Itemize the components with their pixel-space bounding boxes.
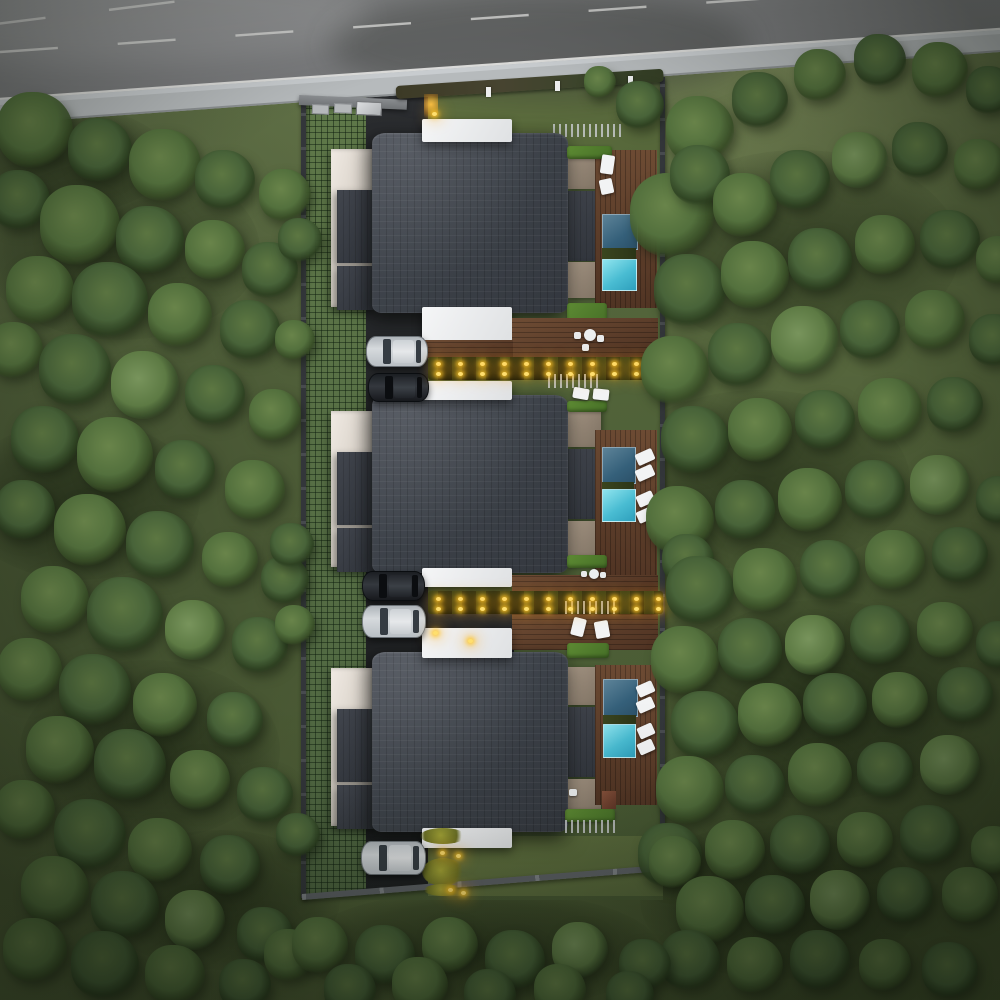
tree (738, 683, 802, 747)
tree (795, 390, 855, 450)
lit-bush (422, 858, 464, 886)
tree (708, 323, 772, 387)
fence-bottom (302, 865, 663, 900)
house2-lower-pool (602, 489, 636, 522)
tree (718, 618, 782, 682)
tree (854, 34, 906, 86)
tree (59, 654, 131, 726)
tree (91, 871, 159, 939)
tree (87, 577, 163, 653)
tree (785, 615, 845, 675)
dark-car (362, 571, 425, 601)
tree (661, 406, 729, 474)
tree (0, 92, 73, 168)
tree (900, 805, 960, 865)
path-light (480, 372, 485, 376)
house1-entrance-canopy (422, 119, 512, 142)
tree (200, 835, 260, 895)
patio-chair (600, 572, 606, 578)
path-light (568, 607, 573, 611)
lounger (572, 387, 590, 401)
tree (71, 931, 139, 999)
house3-lower-pool (603, 724, 636, 758)
tree (128, 818, 192, 882)
car-rear-window (413, 610, 419, 634)
tree (202, 532, 258, 588)
house3-upper-pool (603, 679, 638, 717)
tree (21, 856, 89, 924)
tree (170, 750, 230, 810)
tree (145, 945, 205, 1000)
path-light (634, 597, 639, 601)
tree (185, 365, 245, 425)
tree (249, 389, 301, 441)
house1-roof (372, 133, 568, 313)
path-light (502, 372, 507, 376)
tree (225, 460, 285, 520)
path-light (546, 607, 551, 611)
tree (0, 480, 55, 540)
hedge (567, 643, 609, 658)
tree (54, 494, 126, 566)
tree (770, 815, 830, 875)
tree (845, 460, 905, 520)
garden-chair (569, 789, 577, 796)
silver-car (362, 605, 426, 638)
tree (859, 939, 911, 991)
path-light (568, 372, 573, 376)
object-layer (0, 0, 1000, 1000)
fence-post (555, 81, 560, 91)
car-windshield (385, 376, 393, 399)
tree (855, 215, 915, 275)
tree (195, 150, 255, 210)
tree (207, 692, 263, 748)
tree (713, 173, 777, 237)
tree (837, 812, 893, 868)
lighted-path (428, 591, 663, 614)
path-light (436, 607, 441, 611)
tree (39, 334, 111, 406)
patio-table (589, 569, 599, 579)
garden-light (448, 888, 453, 892)
path-light (480, 362, 485, 366)
tree (790, 930, 850, 990)
gate-skylight (356, 101, 383, 116)
tree (771, 306, 839, 374)
gate-panel (312, 104, 329, 115)
tree (715, 480, 775, 540)
house1-pool-planter (602, 248, 636, 259)
path-light (568, 362, 573, 366)
house2-rear-canopy (422, 568, 512, 587)
path-light (612, 372, 617, 376)
tree (954, 139, 1000, 191)
car-roof (393, 340, 414, 363)
tree (165, 600, 225, 660)
car-rear-window (417, 377, 422, 398)
tree (865, 530, 925, 590)
path-light (458, 362, 463, 366)
tree (927, 377, 983, 433)
tree (976, 621, 1000, 669)
tree (666, 556, 734, 624)
house3-left-wing-roof (337, 709, 375, 782)
tree (745, 875, 805, 935)
path-light (634, 362, 639, 366)
path-light (546, 372, 551, 376)
path-light (502, 362, 507, 366)
tree (727, 937, 783, 993)
patio-table (584, 329, 596, 341)
hedge (567, 555, 607, 568)
tree (942, 867, 998, 923)
tree (111, 351, 179, 419)
path-light (524, 362, 529, 366)
tree (77, 417, 153, 493)
path-light (590, 597, 595, 601)
garden-light (468, 639, 473, 643)
path-light (634, 372, 639, 376)
terrace-deck (512, 575, 658, 592)
car-windshield (379, 574, 387, 598)
path-light (502, 597, 507, 601)
tree (725, 755, 785, 815)
tree (912, 42, 968, 98)
tree (850, 605, 910, 665)
tree (275, 320, 315, 360)
path-light (656, 607, 661, 611)
tree (165, 890, 225, 950)
house3-left-wing-roof (337, 785, 375, 829)
path-light (458, 597, 463, 601)
car-windshield (380, 608, 388, 634)
tree (94, 729, 166, 801)
tree (0, 638, 62, 702)
house3-pool-planter (603, 715, 636, 724)
fence-left (301, 96, 306, 898)
path-light (612, 597, 617, 601)
silver-car (361, 841, 426, 875)
tree (11, 406, 79, 474)
tree (905, 290, 965, 350)
tree (0, 322, 43, 378)
tree (932, 527, 988, 583)
lounger (594, 620, 611, 639)
tree (275, 605, 315, 645)
tree (872, 672, 928, 728)
tree (732, 72, 788, 128)
path-light (656, 597, 661, 601)
lounger (592, 388, 609, 401)
tree (794, 49, 846, 101)
tree (922, 942, 978, 998)
tree (770, 150, 830, 210)
garden-trellis (565, 820, 615, 833)
car-rear-window (412, 575, 417, 596)
house1-left-wing-roof (337, 266, 375, 310)
tree (651, 626, 719, 694)
house2-pool-planter (602, 482, 634, 489)
tree (641, 336, 709, 404)
house1-lower-pool (602, 259, 637, 291)
garden-light (456, 854, 461, 858)
tree (278, 218, 322, 262)
car-rear-window (416, 340, 421, 362)
tree (148, 283, 212, 347)
tree (857, 742, 913, 798)
tree (155, 440, 215, 500)
tree (892, 122, 948, 178)
house3-roof (372, 652, 568, 832)
garden-light (433, 631, 438, 635)
path-light (612, 362, 617, 366)
patio-chair (581, 571, 587, 577)
house2-upper-pool (602, 447, 636, 484)
fence-post (486, 87, 491, 97)
tree (803, 673, 867, 737)
lit-bush (424, 884, 462, 896)
tree (966, 66, 1000, 114)
path-light (634, 607, 639, 611)
car-rear-window (413, 846, 419, 870)
tree (733, 548, 797, 612)
path-light (436, 362, 441, 366)
house1-rear-canopy (422, 307, 512, 341)
tree (920, 210, 980, 270)
garden-light (432, 112, 437, 116)
tree (910, 455, 970, 515)
tree (917, 602, 973, 658)
tree (788, 743, 852, 807)
path-light (458, 607, 463, 611)
path-light (458, 372, 463, 376)
path-light (590, 362, 595, 366)
tree (728, 398, 792, 462)
tree (721, 241, 789, 309)
tree (185, 220, 245, 280)
tree (68, 118, 132, 182)
path-light (590, 372, 595, 376)
house2-left-wing-roof (337, 528, 375, 572)
path-light (524, 372, 529, 376)
tree (133, 673, 197, 737)
tree (220, 300, 280, 360)
path-light (524, 597, 529, 601)
tree (778, 468, 842, 532)
garden-light (461, 891, 466, 895)
tree (654, 254, 726, 326)
tree (976, 476, 1000, 524)
tree (72, 262, 148, 338)
terrace-deck (425, 340, 513, 358)
path-light (436, 597, 441, 601)
tree (788, 228, 852, 292)
tree (937, 667, 993, 723)
tree (920, 735, 980, 795)
tree (832, 132, 888, 188)
path-light (590, 607, 595, 611)
gate-panel (334, 103, 352, 114)
tree (6, 256, 74, 324)
house2-roof (372, 395, 568, 573)
tree (671, 691, 739, 759)
path-light (612, 607, 617, 611)
garden-light (440, 851, 445, 855)
tree (584, 66, 616, 98)
path-light (436, 372, 441, 376)
tree (116, 206, 184, 274)
tree (969, 314, 1000, 366)
silver-car (366, 336, 428, 367)
car-roof (390, 609, 412, 634)
tree (26, 716, 94, 784)
hedge (567, 401, 607, 412)
car-windshield (379, 845, 387, 872)
path-light (480, 597, 485, 601)
lounger (599, 178, 615, 195)
tree (656, 756, 724, 824)
car-windshield (383, 339, 391, 363)
path-light (546, 362, 551, 366)
path-light (480, 607, 485, 611)
house2-left-wing-roof (337, 452, 375, 525)
tree (129, 129, 201, 201)
path-light (546, 597, 551, 601)
tree (810, 870, 870, 930)
patio-chair (582, 344, 589, 351)
tree (259, 169, 311, 221)
tree (276, 813, 320, 857)
tree (616, 81, 664, 129)
patio-chair (597, 335, 604, 342)
tree (40, 185, 120, 265)
patio-chair (574, 332, 581, 339)
car-roof (389, 845, 411, 871)
tree (976, 236, 1000, 284)
tree (0, 780, 55, 840)
path-light (502, 607, 507, 611)
tree (3, 918, 67, 982)
tree (858, 378, 922, 442)
car-roof (394, 377, 415, 399)
lighted-path (428, 357, 663, 380)
path-light (524, 607, 529, 611)
car-roof (389, 575, 410, 597)
tree (126, 511, 194, 579)
path-light (568, 597, 573, 601)
tree (705, 820, 765, 880)
tree (219, 959, 271, 1000)
tree (877, 867, 933, 923)
tree (800, 540, 860, 600)
house1-left-wing-roof (337, 190, 375, 263)
dark-car (368, 373, 429, 402)
lit-bush (420, 828, 466, 844)
tree (840, 300, 900, 360)
planter-box (602, 791, 616, 809)
tree (270, 523, 314, 567)
aerial-site-render (0, 0, 1000, 1000)
tree (21, 566, 89, 634)
lounger (600, 154, 616, 175)
house2-entrance-canopy (422, 381, 512, 400)
